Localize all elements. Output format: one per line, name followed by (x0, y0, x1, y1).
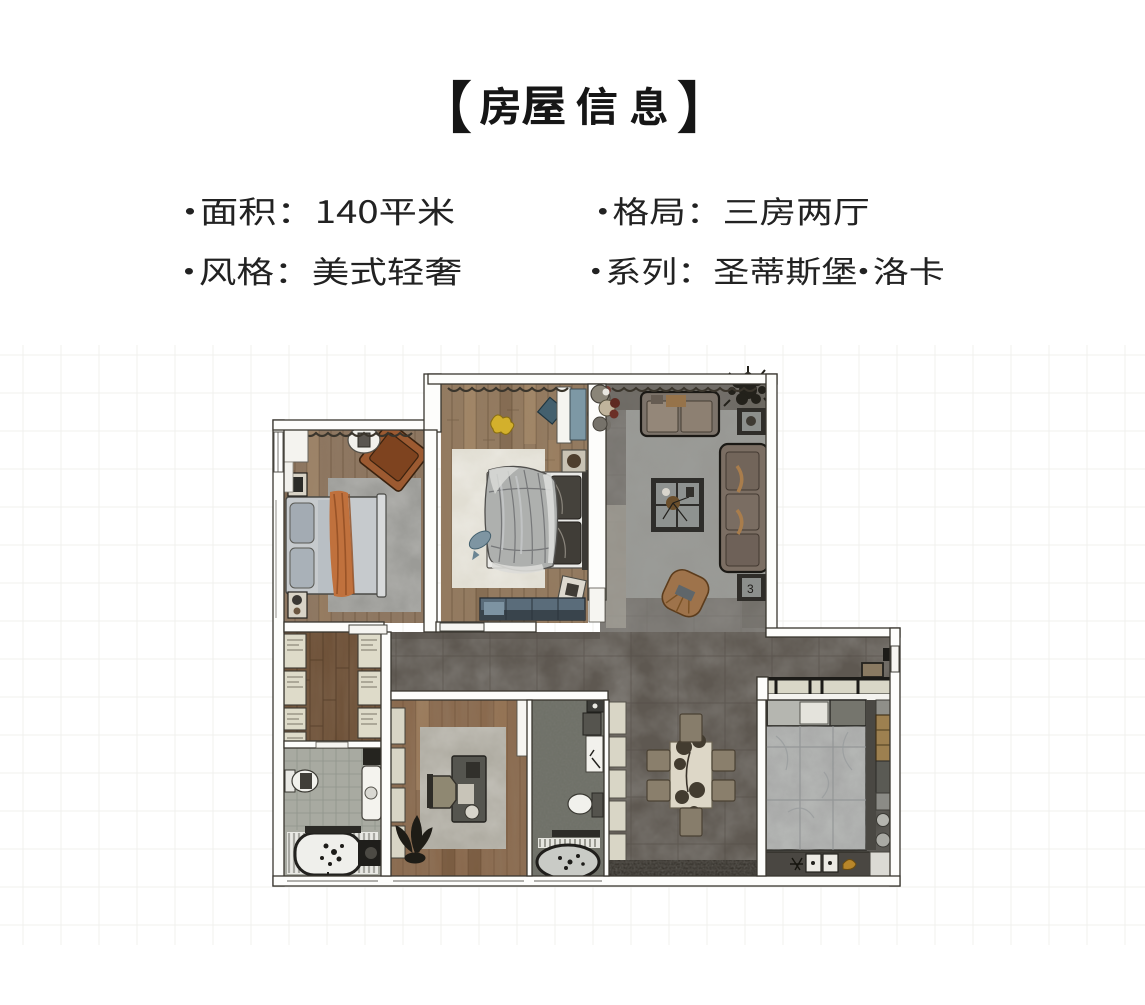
svg-text:3: 3 (747, 582, 754, 596)
